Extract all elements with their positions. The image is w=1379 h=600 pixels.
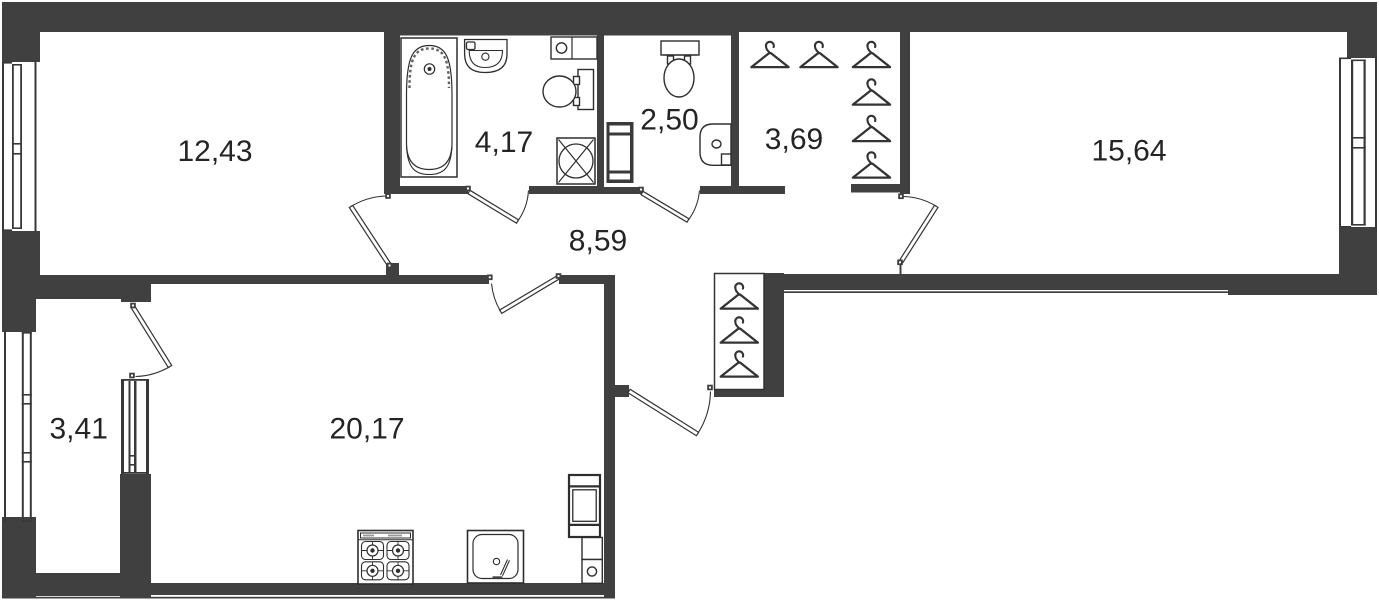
svg-text:20,17: 20,17 — [329, 413, 404, 446]
svg-text:2,50: 2,50 — [640, 104, 698, 137]
svg-text:15,64: 15,64 — [1091, 135, 1166, 168]
svg-text:3,41: 3,41 — [50, 413, 108, 446]
svg-text:8,59: 8,59 — [569, 225, 627, 258]
svg-text:4,17: 4,17 — [475, 126, 533, 159]
svg-text:3,69: 3,69 — [765, 123, 823, 156]
svg-text:12,43: 12,43 — [177, 135, 252, 168]
